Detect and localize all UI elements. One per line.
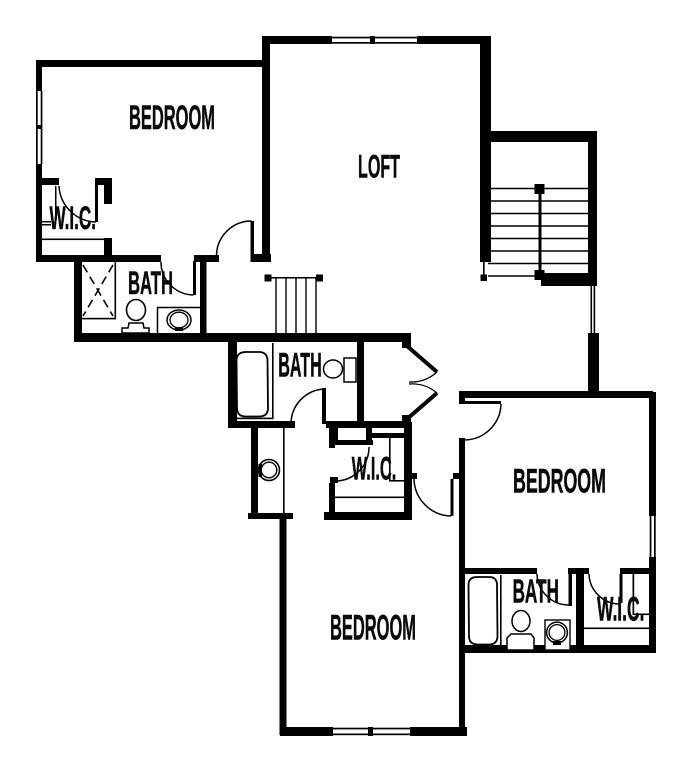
svg-text:BEDROOM: BEDROOM — [330, 608, 416, 648]
svg-text:BEDROOM: BEDROOM — [513, 463, 606, 501]
svg-text:W.I.C.: W.I.C. — [597, 591, 645, 629]
svg-text:BEDROOM: BEDROOM — [129, 99, 215, 137]
svg-text:BATH: BATH — [512, 574, 559, 611]
svg-text:BATH: BATH — [128, 265, 173, 301]
svg-text:LOFT: LOFT — [358, 149, 400, 185]
svg-text:BATH: BATH — [278, 347, 322, 385]
